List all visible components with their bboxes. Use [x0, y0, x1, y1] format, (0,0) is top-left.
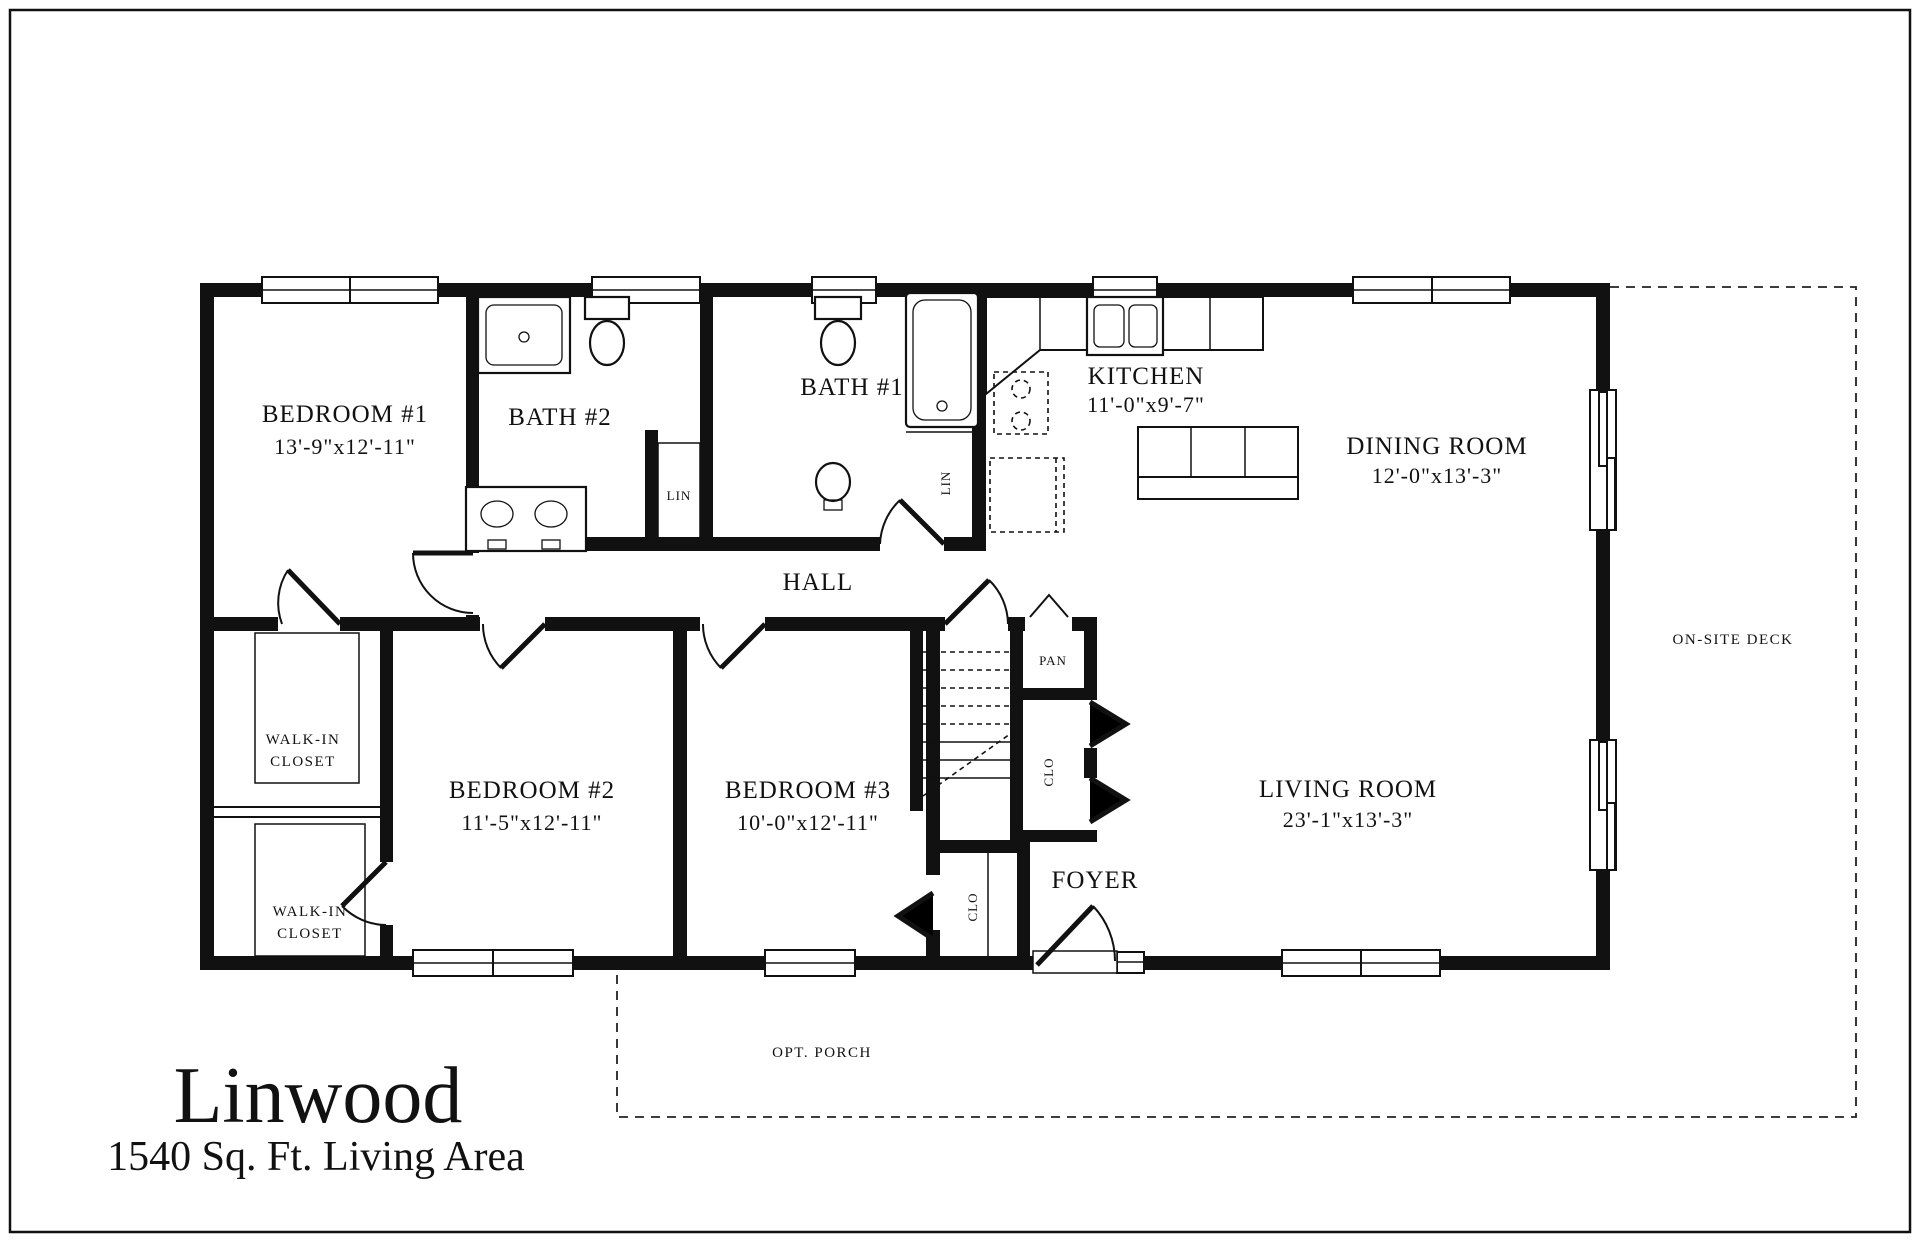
- title-block: Linwood 1540 Sq. Ft. Living Area: [107, 1052, 525, 1180]
- walkin-lower-line2: CLOSET: [277, 926, 343, 942]
- doors: [278, 500, 1126, 973]
- plan-title: Linwood: [174, 1052, 463, 1140]
- bedroom1-label: BEDROOM #1: [262, 401, 428, 428]
- bedroom2-dims: 11'-5"x12'-11": [462, 810, 603, 835]
- patio-door-living: [1590, 740, 1616, 870]
- bath1-label: BATH #1: [800, 374, 904, 401]
- pedestal-sink-fixture: [816, 463, 850, 510]
- toilet-fixture: [815, 297, 861, 365]
- dinette-table: [1138, 427, 1298, 499]
- refrigerator-fixture: [990, 458, 1064, 532]
- double-vanity-fixture: [466, 487, 586, 551]
- foyer-label: FOYER: [1052, 867, 1139, 894]
- window-dining: [1353, 277, 1510, 303]
- patio-door-dining: [1590, 390, 1616, 530]
- kitchen-label: KITCHEN: [1088, 363, 1205, 390]
- window-bedroom2: [413, 950, 573, 976]
- bath2-label: BATH #2: [508, 404, 612, 431]
- page-border: [10, 10, 1910, 1232]
- bath1-fixtures: [815, 293, 978, 510]
- living-label: LIVING ROOM: [1259, 776, 1437, 803]
- closet-lines: [214, 443, 988, 956]
- bedroom1-dims: 13'-9"x12'-11": [274, 434, 416, 459]
- linen-baths-label: LIN: [667, 488, 692, 503]
- window-bedroom3: [765, 950, 855, 976]
- coat-closet-label: CLO: [1041, 758, 1056, 787]
- toilet-fixture: [585, 297, 629, 365]
- porch-label: OPT. PORCH: [772, 1045, 872, 1061]
- bedroom3-dims: 10'-0"x12'-11": [737, 810, 879, 835]
- plan-subtitle: 1540 Sq. Ft. Living Area: [107, 1134, 525, 1180]
- deck-porch-outline: [617, 287, 1856, 1117]
- kitchen-dims: 11'-0"x9'-7": [1087, 392, 1205, 417]
- walkin-lower-line1: WALK-IN: [273, 904, 348, 920]
- deck-label: ON-SITE DECK: [1673, 632, 1794, 648]
- front-door-sidelite: [1117, 952, 1144, 973]
- living-dims: 23'-1"x13'-3": [1283, 807, 1414, 832]
- hall-label: HALL: [783, 569, 854, 596]
- floor-plan-drawing: BEDROOM #1 13'-9"x12'-11" BATH #2 BATH #…: [0, 0, 1920, 1242]
- dining-label: DINING ROOM: [1346, 433, 1527, 460]
- window-bedroom1: [262, 277, 438, 303]
- bedroom3-closet-label: CLO: [965, 893, 980, 922]
- kitchen-sink-fixture: [1087, 297, 1163, 355]
- walkin-upper-line1: WALK-IN: [266, 732, 341, 748]
- bedroom2-label: BEDROOM #2: [449, 777, 615, 804]
- walkin-upper-line2: CLOSET: [270, 754, 336, 770]
- bathtub-fixture: [906, 293, 978, 432]
- dining-dims: 12'-0"x13'-3": [1372, 463, 1503, 488]
- floor-plan-page: BEDROOM #1 13'-9"x12'-11" BATH #2 BATH #…: [0, 0, 1920, 1242]
- bedroom3-label: BEDROOM #3: [725, 777, 891, 804]
- shower-fixture: [478, 297, 570, 373]
- pantry-label: PAN: [1039, 653, 1067, 668]
- linen-bath1-label: LIN: [938, 471, 953, 496]
- window-living: [1282, 950, 1440, 976]
